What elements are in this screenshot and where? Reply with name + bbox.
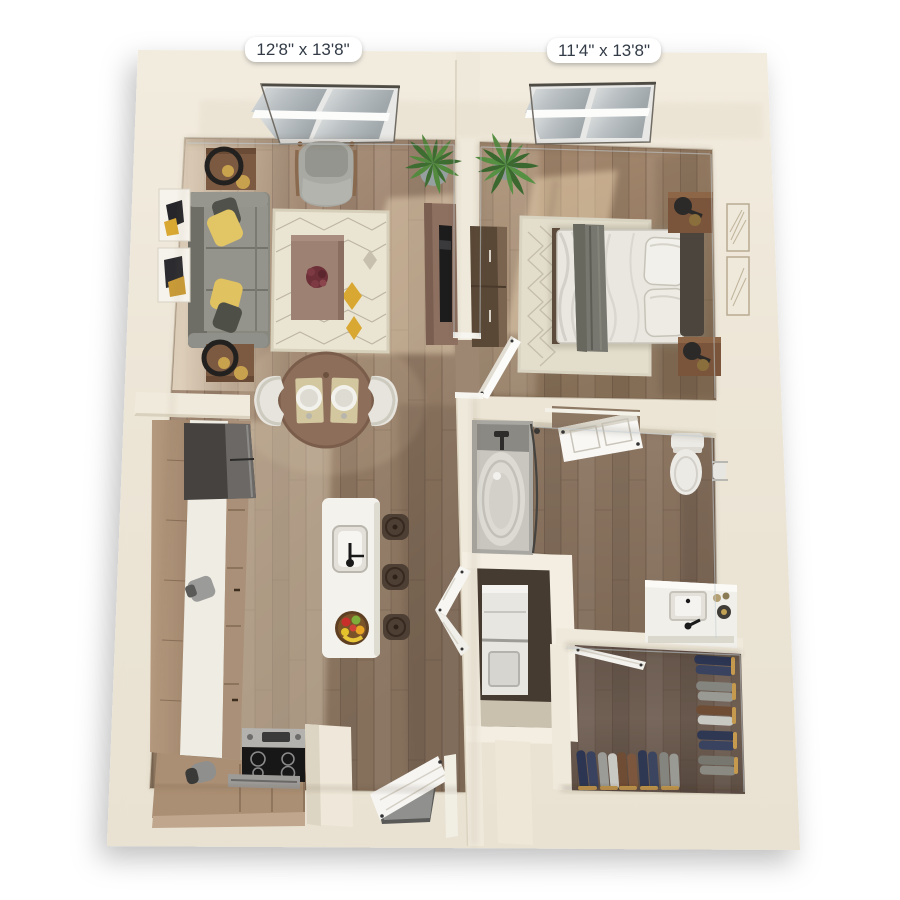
svg-text:12'8" x 13'8": 12'8" x 13'8" [256, 40, 349, 59]
svg-text:11'4" x 13'8": 11'4" x 13'8" [558, 41, 650, 60]
